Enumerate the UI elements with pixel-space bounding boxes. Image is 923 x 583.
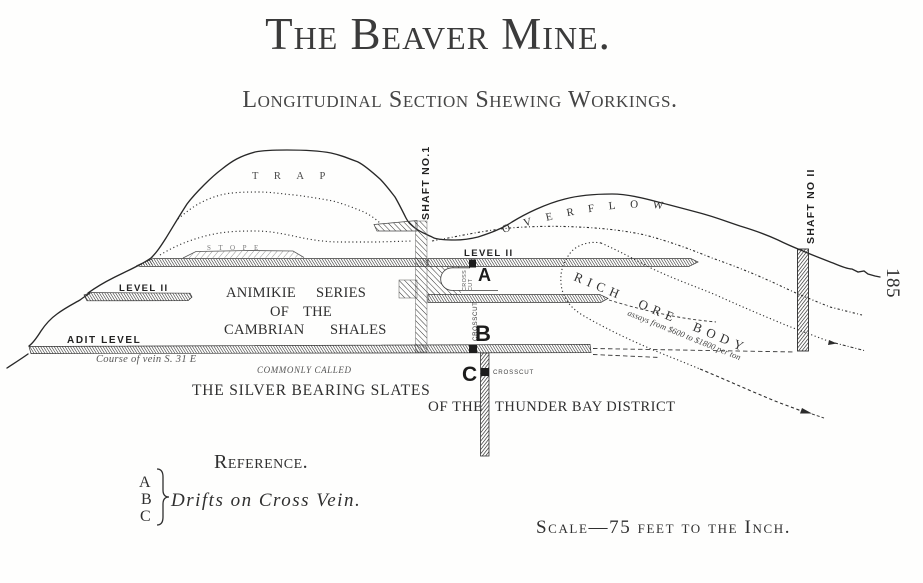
svg-text:RICH ORE BODY: RICH ORE BODY: [572, 269, 751, 356]
svg-text:SHALES: SHALES: [330, 322, 387, 338]
svg-text:185: 185: [882, 268, 903, 298]
svg-text:SHAFT NO.1: SHAFT NO.1: [420, 146, 432, 220]
svg-text:Reference.: Reference.: [214, 451, 308, 473]
svg-text:LEVEL II: LEVEL II: [119, 283, 169, 294]
svg-text:ANIMIKIE: ANIMIKIE: [226, 285, 296, 301]
svg-text:CUT: CUT: [468, 278, 474, 291]
svg-text:COMMONLY CALLED: COMMONLY CALLED: [257, 365, 352, 375]
svg-text:CAMBRIAN: CAMBRIAN: [224, 322, 305, 338]
svg-text:Scale—75 feet to the Inch.: Scale—75 feet to the Inch.: [536, 517, 791, 538]
svg-text:Course of vein S. 31 E: Course of vein S. 31 E: [96, 354, 197, 365]
svg-text:THE SILVER BEARING SLATES: THE SILVER BEARING SLATES: [192, 382, 431, 399]
svg-text:SHAFT NO II: SHAFT NO II: [805, 168, 817, 244]
svg-text:SERIES: SERIES: [316, 285, 366, 301]
svg-text:STOPE: STOPE: [207, 244, 266, 252]
svg-text:OF THE: OF THE: [428, 399, 483, 415]
svg-text:THE: THE: [303, 304, 332, 320]
svg-text:ADIT LEVEL: ADIT LEVEL: [67, 335, 141, 346]
svg-text:A: A: [139, 474, 151, 491]
svg-text:Drifts on Cross Vein.: Drifts on Cross Vein.: [170, 490, 361, 511]
svg-text:C: C: [140, 508, 151, 525]
svg-text:TRAP: TRAP: [252, 171, 341, 182]
svg-text:LEVEL II: LEVEL II: [464, 248, 514, 259]
svg-text:The Beaver Mine.: The Beaver Mine.: [265, 9, 611, 59]
svg-text:B: B: [141, 491, 152, 508]
svg-text:THUNDER BAY DISTRICT: THUNDER BAY DISTRICT: [495, 399, 676, 415]
svg-text:CROSSCUT: CROSSCUT: [493, 369, 534, 376]
svg-text:B: B: [475, 321, 491, 346]
svg-text:OF: OF: [270, 304, 289, 320]
svg-text:Longitudinal Section Shewing W: Longitudinal Section Shewing Workings.: [242, 87, 677, 113]
svg-text:OVERFLOW: OVERFLOW: [501, 198, 679, 235]
svg-text:C: C: [462, 363, 477, 386]
svg-text:A: A: [478, 265, 491, 285]
svg-text:CROSS: CROSS: [462, 270, 468, 291]
